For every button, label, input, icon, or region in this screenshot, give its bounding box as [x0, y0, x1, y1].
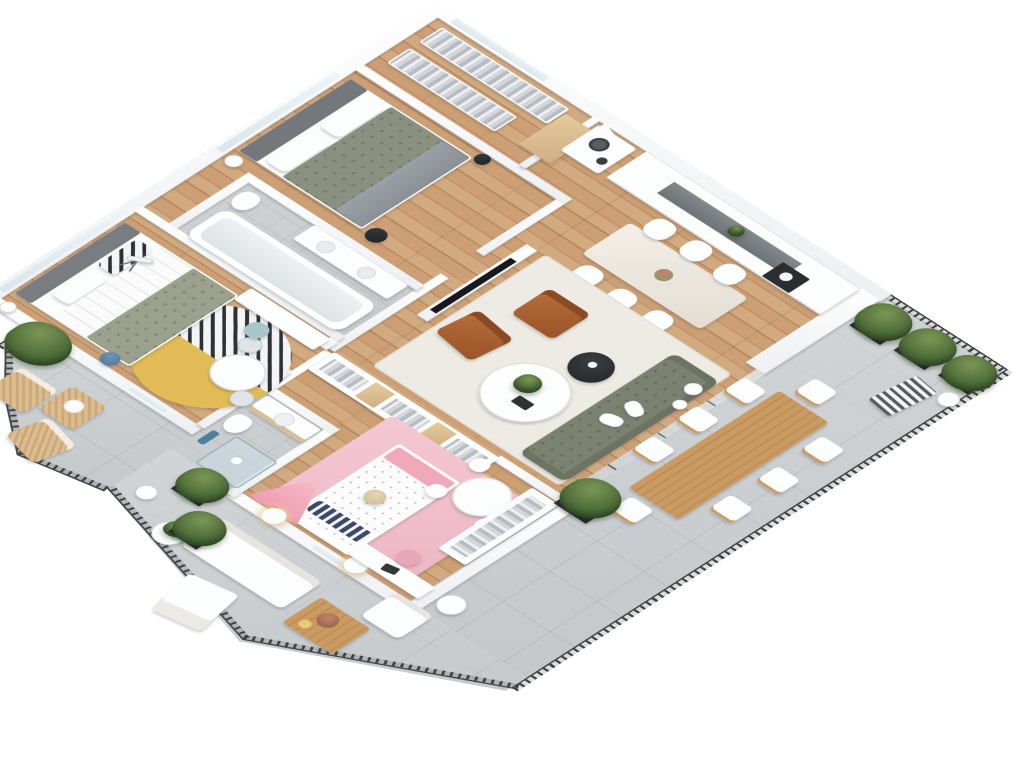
floor-plan-canvas [0, 0, 1024, 768]
